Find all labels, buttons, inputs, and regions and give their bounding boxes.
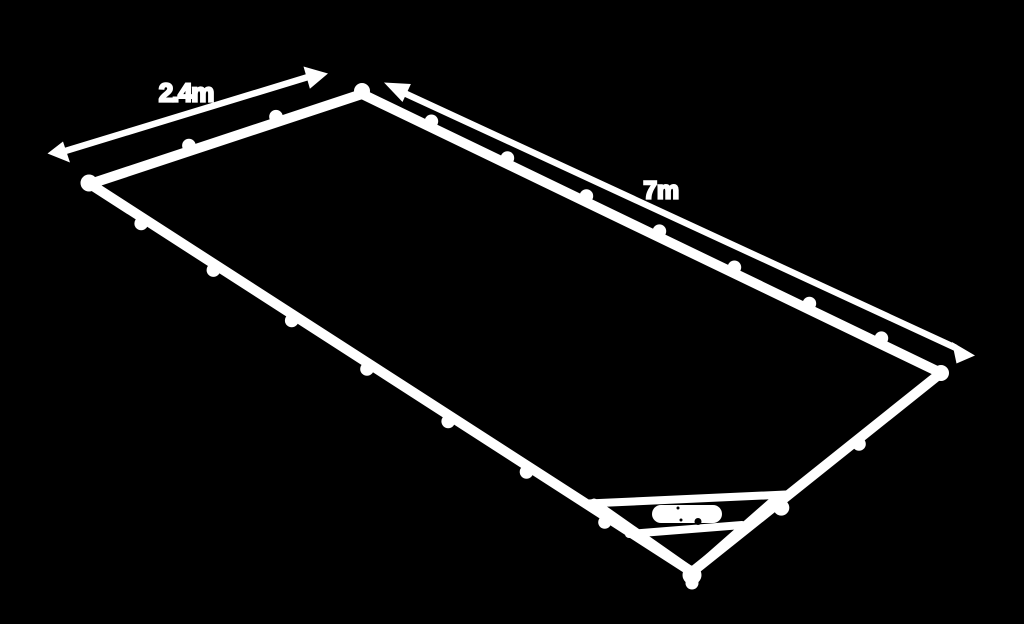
svg-text:2.4m: 2.4m xyxy=(159,78,214,108)
svg-text:7m: 7m xyxy=(643,177,679,205)
